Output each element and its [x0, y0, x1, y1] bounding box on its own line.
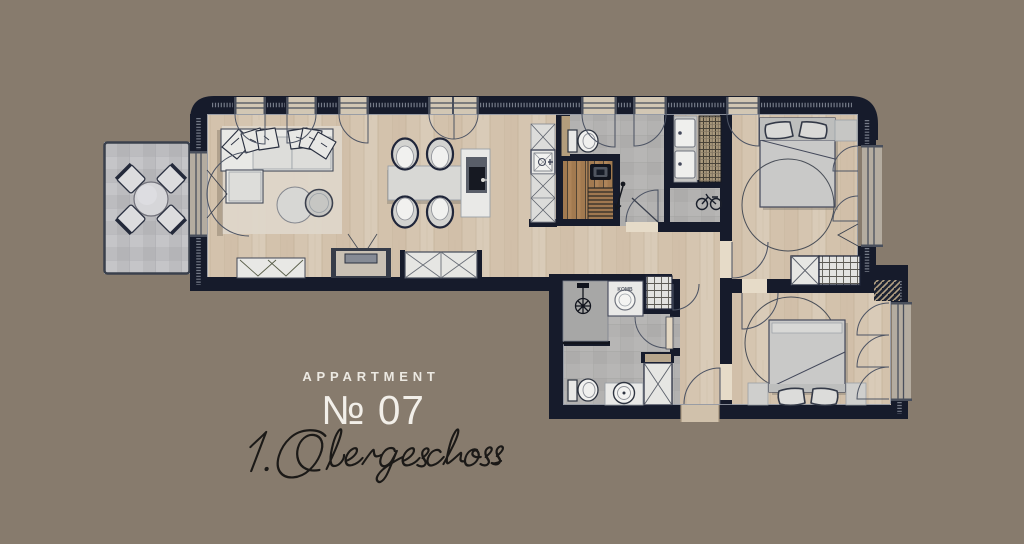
svg-text:KOMB: KOMB [617, 287, 633, 293]
svg-text:APPARTMENT: APPARTMENT [302, 369, 439, 384]
svg-text:№ 07: № 07 [321, 387, 425, 433]
